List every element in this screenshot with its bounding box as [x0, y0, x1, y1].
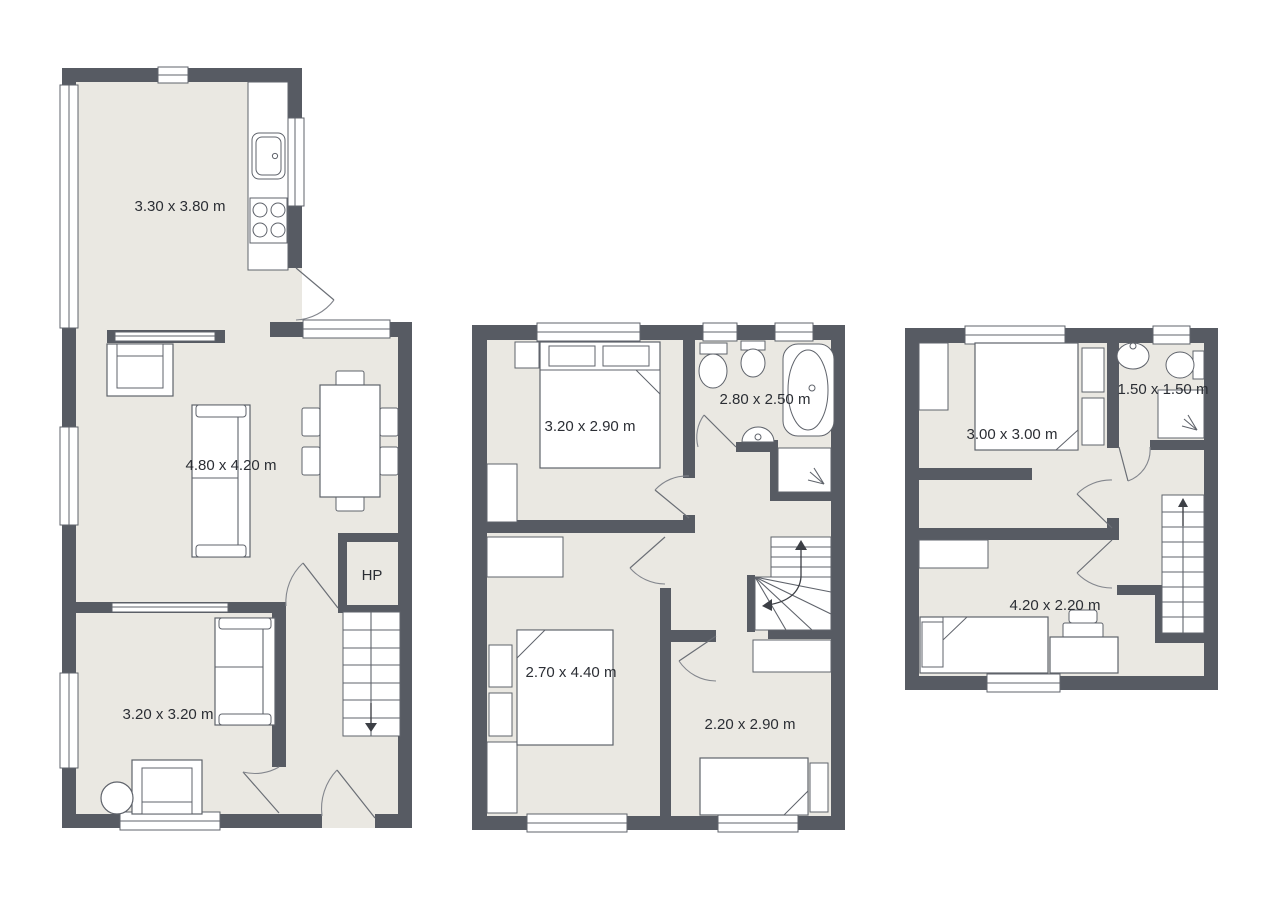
window: [286, 118, 304, 206]
living-room-dimension-label: 4.80 x 4.20 m: [186, 457, 277, 474]
window: [60, 85, 78, 328]
closet-under-stairs: [753, 640, 831, 672]
ground-staircase: [343, 612, 400, 736]
window: [303, 320, 390, 338]
floor-plan-page: 3.30 x 3.80 m 4.80 x 4.20 m 3.20 x 3.20 …: [0, 0, 1280, 907]
side-table: [101, 782, 133, 814]
window: [115, 332, 215, 341]
shelf: [489, 645, 512, 687]
nightstand: [1082, 348, 1104, 392]
window: [158, 67, 188, 83]
bedroom-left-dimension-label: 2.70 x 4.40 m: [526, 664, 617, 681]
toilet-icon: [699, 343, 727, 388]
kitchen-counter: [248, 82, 288, 270]
bidet-icon: [741, 341, 765, 377]
window: [703, 323, 737, 341]
cabinet: [919, 540, 988, 568]
bedroom-dimension-label: 3.00 x 3.00 m: [967, 426, 1058, 443]
kitchen-dimension-label: 3.30 x 3.80 m: [135, 198, 226, 215]
window: [537, 323, 640, 341]
second-staircase: [1162, 495, 1204, 633]
wardrobe: [919, 343, 948, 410]
front-room-sofa: [215, 618, 275, 725]
double-bed: [540, 342, 660, 468]
bathroom-dimension-label: 2.80 x 2.50 m: [720, 391, 811, 408]
front-room-armchair: [132, 760, 202, 814]
window: [965, 326, 1065, 344]
bathroom-dimension-label: 1.50 x 1.50 m: [1118, 381, 1209, 398]
wardrobe: [487, 537, 563, 577]
ground-floor-plan: 3.30 x 3.80 m 4.80 x 4.20 m 3.20 x 3.20 …: [60, 67, 412, 830]
single-bed: [920, 617, 1048, 673]
window: [120, 812, 220, 830]
shower-icon: [778, 448, 831, 492]
nightstand: [1082, 398, 1104, 445]
closet: [487, 464, 517, 522]
bathtub-icon: [783, 344, 834, 436]
heat-pump-label: HP: [362, 567, 383, 584]
sink-icon: [252, 133, 285, 179]
interior-window: [112, 603, 228, 612]
shelf: [489, 693, 512, 736]
window: [718, 814, 798, 832]
sofa: [192, 405, 250, 557]
armchair: [107, 344, 173, 396]
washbasin-icon: [1117, 343, 1149, 369]
window: [60, 427, 78, 525]
window: [1153, 326, 1190, 344]
rear-room-dimension-label: 4.20 x 2.20 m: [1010, 597, 1101, 614]
hob-icon: [250, 198, 287, 243]
window: [60, 673, 78, 768]
second-floor-plan: 3.00 x 3.00 m 1.50 x 1.50 m 4.20 x 2.20 …: [905, 326, 1218, 692]
wardrobe: [487, 742, 517, 813]
double-bed: [517, 630, 613, 745]
window: [987, 674, 1060, 692]
toilet-icon: [1166, 351, 1204, 379]
nightstand: [515, 342, 539, 368]
front-room-dimension-label: 3.20 x 3.20 m: [123, 706, 214, 723]
bedroom-front-dimension-label: 3.20 x 2.90 m: [545, 418, 636, 435]
first-floor-plan: 3.20 x 2.90 m 2.80 x 2.50 m 2.70 x 4.40 …: [472, 323, 845, 832]
bedroom-right-dimension-label: 2.20 x 2.90 m: [705, 716, 796, 733]
floor-plan-drawing: 3.30 x 3.80 m 4.80 x 4.20 m 3.20 x 3.20 …: [0, 0, 1280, 907]
window: [775, 323, 813, 341]
window: [527, 814, 627, 832]
